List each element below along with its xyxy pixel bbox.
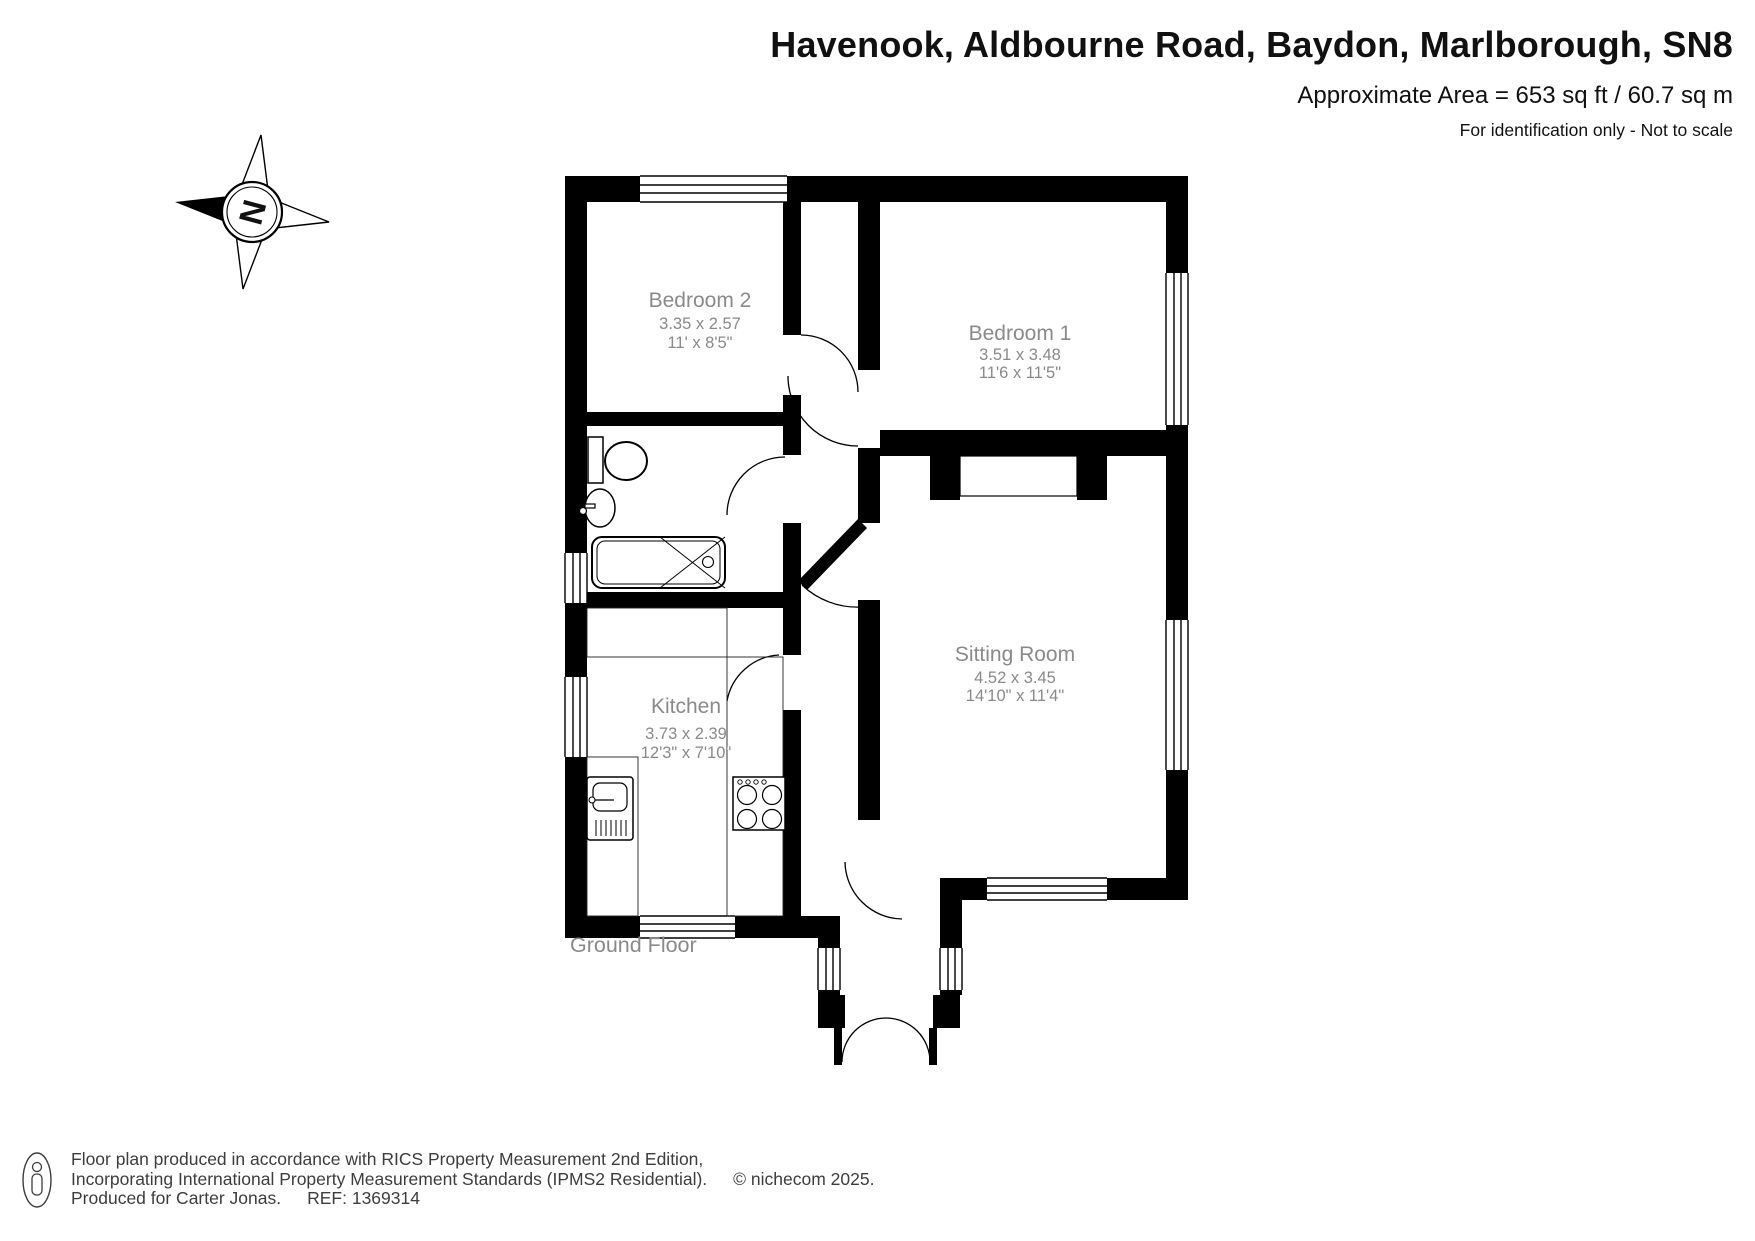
window-bathroom-left [565, 553, 587, 603]
floor-label: Ground Floor [570, 933, 697, 957]
room-name: Sitting Room [955, 643, 1075, 666]
door-arc-front-inner [845, 862, 902, 919]
compass-icon: N [175, 135, 329, 289]
room-dims-imperial: 11'6 x 11'5" [979, 364, 1061, 382]
footer-line-2: Incorporating International Property Mea… [71, 1170, 874, 1190]
kitchen-fixtures [587, 608, 785, 916]
room-label-sitting-room: Sitting Room 4.52 x 3.45 14'10" x 11'4" [955, 643, 1075, 705]
room-name: Kitchen [651, 695, 721, 718]
kitchen-sink-icon [587, 777, 633, 840]
window-bedroom1-right [1166, 273, 1188, 425]
person-icon [15, 1150, 61, 1212]
door-arc-bedroom2 [801, 335, 858, 392]
window-porch-left [818, 948, 840, 990]
copyright: © nichecom 2025. [733, 1169, 874, 1189]
room-dims-imperial: 14'10" x 11'4" [966, 687, 1065, 705]
footer: Floor plan produced in accordance with R… [15, 1150, 874, 1212]
chimney-recess [960, 456, 1077, 496]
door-arc-sitting-room [802, 585, 861, 607]
window-porch-right [940, 948, 962, 990]
room-dims-metric: 3.51 x 3.48 [979, 346, 1061, 364]
reference-number: REF: 1369314 [307, 1188, 420, 1208]
door-leaf-sitting-room [798, 519, 867, 590]
footer-line-3: Produced for Carter Jonas.REF: 1369314 [71, 1189, 874, 1209]
kitchen-counter-top [587, 608, 727, 657]
door-arc-porch-left [842, 1018, 886, 1062]
floor-plan: N [0, 0, 1755, 1241]
room-label-bedroom1: Bedroom 1 3.51 x 3.48 11'6 x 11'5" [969, 322, 1072, 382]
footer-line-1: Floor plan produced in accordance with R… [71, 1150, 874, 1170]
room-name: Bedroom 1 [969, 322, 1072, 345]
window-bedroom2-top [640, 176, 787, 202]
room-label-bedroom2: Bedroom 2 3.35 x 2.57 11' x 8'5" [649, 289, 752, 352]
toilet-icon [588, 437, 647, 483]
door-arc-kitchen [727, 655, 779, 701]
door-arc-bathroom [727, 457, 785, 515]
room-dims-metric: 4.52 x 3.45 [974, 669, 1056, 687]
room-dims-imperial: 11' x 8'5" [667, 334, 732, 352]
window-sitting-bottom [987, 878, 1107, 900]
footer-text: Floor plan produced in accordance with R… [71, 1150, 874, 1209]
door-arc-porch-right [886, 1018, 930, 1062]
room-dims-metric: 3.35 x 2.57 [659, 315, 741, 333]
room-dims-imperial: 12'3" x 7'10" [641, 744, 732, 762]
bathroom-fixtures [580, 437, 726, 588]
bath-icon [592, 537, 725, 588]
room-dims-metric: 3.73 x 2.39 [645, 725, 727, 743]
window-kitchen-left [565, 677, 587, 757]
room-name: Bedroom 2 [649, 289, 752, 312]
hob-icon [733, 777, 785, 830]
window-sitting-right [1166, 620, 1188, 770]
room-label-kitchen: Kitchen 3.73 x 2.39 12'3" x 7'10" [641, 695, 732, 762]
